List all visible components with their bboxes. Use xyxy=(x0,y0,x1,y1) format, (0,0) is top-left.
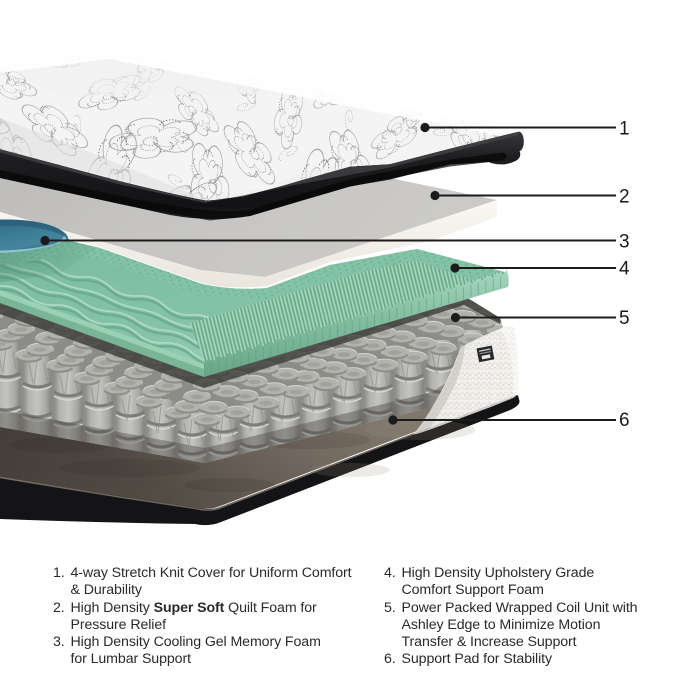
svg-text:4: 4 xyxy=(619,259,630,280)
svg-text:3: 3 xyxy=(619,232,630,253)
svg-text:5: 5 xyxy=(619,308,630,329)
svg-text:2: 2 xyxy=(619,187,630,208)
svg-text:6: 6 xyxy=(619,410,630,431)
svg-text:1: 1 xyxy=(619,119,630,140)
